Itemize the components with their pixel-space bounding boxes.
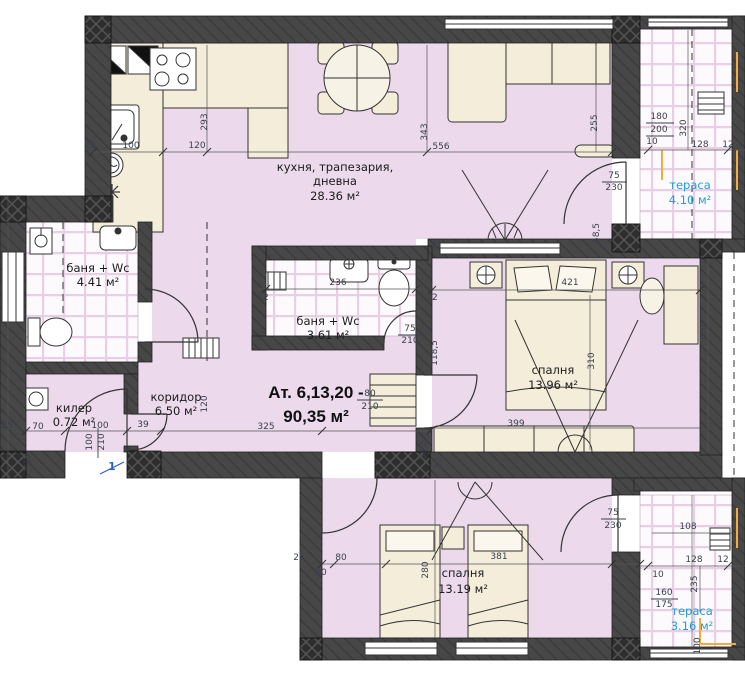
dimension-label: 100	[91, 421, 108, 431]
terrace-radiator-icon	[710, 528, 730, 550]
dimension-label: 235	[690, 575, 700, 592]
dimension-label: 75	[607, 508, 618, 518]
bedroom-right-area: 13.96 м²	[528, 378, 578, 392]
toilet-icon	[28, 318, 72, 346]
kitchen-label-2: дневна	[313, 174, 357, 188]
dimension-label: 75	[608, 171, 619, 181]
dimension-label: 210	[401, 336, 418, 346]
window	[2, 252, 24, 322]
terrace-top-area: 4.10 м²	[669, 193, 712, 207]
terrace-top-label: тераса	[669, 178, 711, 192]
bath-middle-label: баня + Wc	[296, 314, 359, 328]
kitchen-label: кухня, трапезария,	[277, 160, 393, 174]
chair-icon	[640, 278, 664, 314]
dimension-label: 75	[404, 324, 415, 334]
dimension-label: 25	[293, 553, 304, 563]
window	[440, 243, 560, 254]
dimension-label: 12	[257, 293, 268, 303]
closet-area: 0.72 м²	[53, 415, 96, 429]
dimension-label: 10	[652, 570, 664, 580]
dimension-label: 200	[650, 125, 667, 135]
bath-left-sink-icon	[100, 226, 136, 250]
bench-sofa-icon	[434, 426, 634, 454]
floor-plan-drawing: кухня, трапезария, дневна 28.36 м² баня …	[0, 0, 745, 681]
desk-icon	[664, 266, 698, 344]
terrace-bottom-area: 3.16 м²	[671, 619, 714, 633]
dimension-label: 108	[679, 522, 696, 532]
dimension-label: 100	[122, 141, 139, 151]
dimension-label: 556	[432, 142, 449, 152]
dimension-label: 310	[587, 352, 597, 369]
dimension-label: 236	[329, 278, 346, 288]
dimension-label: 343	[420, 123, 430, 140]
dimension-label: 128	[691, 140, 708, 150]
dimension-label: 381	[490, 552, 507, 562]
dimension-label: 58,5	[592, 223, 602, 243]
dimension-label: 58,5	[419, 440, 429, 460]
dimension-label: 100	[693, 637, 703, 654]
corridor-area: 6.50 м²	[155, 404, 198, 418]
bedroom-bottom-floor	[322, 478, 612, 638]
corridor-label: коридор	[150, 390, 201, 404]
dimension-label: 39	[137, 420, 149, 430]
bath-middle-area: 3.61 м²	[307, 328, 350, 342]
toilet-icon	[378, 256, 410, 306]
washbasin-icon	[24, 388, 48, 410]
dimension-label: 12	[434, 457, 444, 468]
bath-left-label: баня + Wc	[66, 261, 129, 275]
shower-icon	[30, 228, 52, 254]
dimension-label: 25	[84, 141, 95, 151]
bedroom-bottom-area: 13.19 м²	[438, 582, 488, 596]
dimension-label: 320	[679, 119, 689, 136]
dimension-label: 120	[188, 141, 205, 151]
dimension-label: 128	[685, 555, 702, 565]
bedroom-bottom-label: спалня	[442, 566, 485, 580]
dimension-label: 175	[655, 600, 672, 610]
floor-plan: кухня, трапезария, дневна 28.36 м² баня …	[0, 0, 745, 681]
dimension-label: 210	[361, 402, 378, 412]
dimension-label: 210	[97, 433, 107, 450]
bedroom-right-label: спалня	[532, 363, 575, 377]
dimension-label: 80	[335, 553, 347, 563]
dining-table-icon	[318, 42, 398, 114]
dimension-label: 230	[604, 521, 621, 531]
radiator-icon	[183, 338, 219, 358]
dimension-label: 421	[561, 278, 578, 288]
dimension-label: 12	[722, 140, 733, 150]
window	[365, 642, 437, 655]
dimension-label: 230	[605, 183, 622, 193]
dimension-label: 100	[85, 433, 95, 450]
dimension-label: 70	[32, 422, 44, 432]
dimension-label: 12	[426, 293, 437, 303]
dimension-label: 280	[421, 561, 431, 578]
window	[650, 649, 728, 658]
single-bed-icon	[380, 525, 440, 638]
dimension-label: 12	[433, 238, 443, 249]
dimension-label: 12	[717, 555, 728, 565]
dimension-label: 255	[590, 114, 600, 131]
dimension-label: 160	[699, 324, 709, 341]
kitchen-cabinet	[248, 108, 288, 158]
bath-left-area: 4.41 м²	[77, 275, 120, 289]
apartment-title: Ат. 6,13,20 -	[268, 383, 363, 402]
dimension-label: 180	[650, 112, 667, 122]
closet-label: килер	[56, 401, 92, 415]
dimension-label: 160	[655, 588, 672, 598]
dimension-label: 325	[257, 422, 274, 432]
dimension-label: 80	[364, 389, 376, 399]
terrace-bottom-label: тераса	[671, 604, 713, 618]
dimension-label: 25	[23, 454, 33, 465]
cooktop-icon	[150, 48, 196, 90]
window	[445, 19, 613, 29]
window	[456, 642, 528, 655]
apartment-area: 90,35 м²	[283, 407, 349, 426]
dimension-label: 399	[507, 419, 524, 429]
terrace-rack-icon	[698, 92, 724, 114]
dimension-label: 10	[646, 137, 658, 147]
kitchen-area: 28.36 м²	[310, 189, 360, 203]
dimension-label: 25	[1, 421, 12, 431]
bedside-table-icon	[442, 527, 464, 549]
dimension-label: 10	[315, 568, 327, 578]
dimension-label: 120	[200, 395, 210, 412]
dimension-label: 293	[200, 113, 210, 130]
dimension-label: 118,5	[430, 340, 440, 366]
window	[648, 18, 728, 27]
